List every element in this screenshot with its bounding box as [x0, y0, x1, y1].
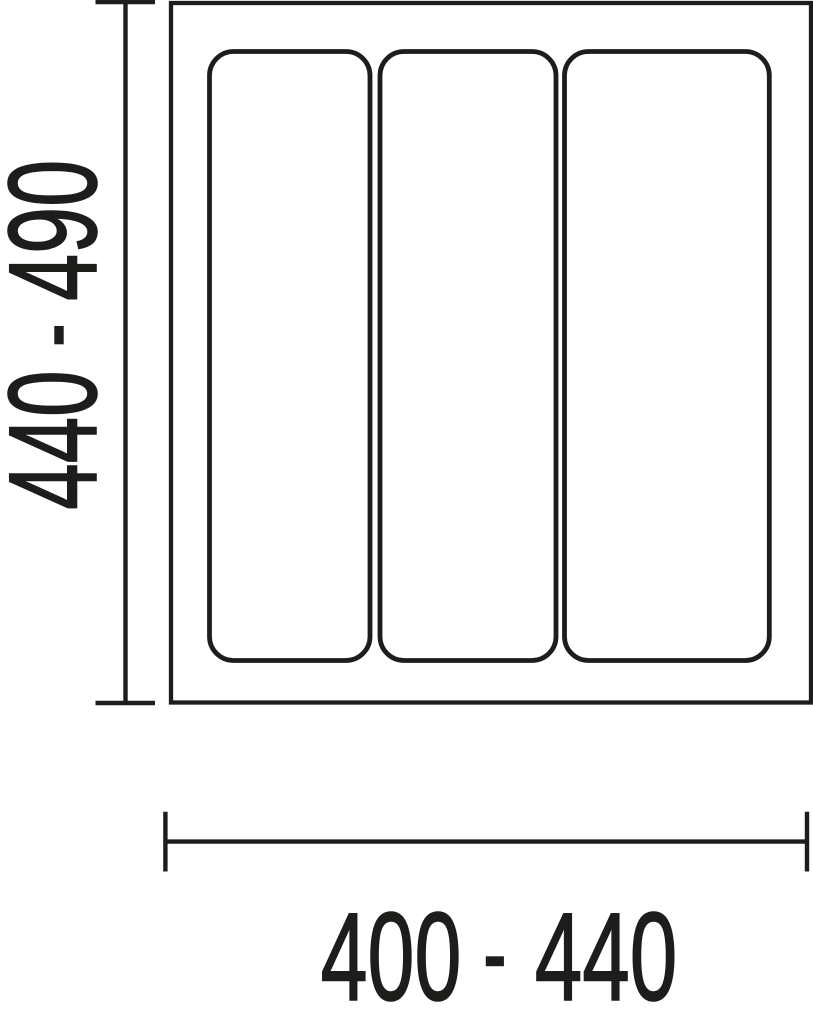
svg-text:400: 400 [321, 886, 462, 1024]
svg-text:440: 440 [0, 370, 123, 509]
svg-text:440: 440 [535, 887, 678, 1024]
svg-text:490: 490 [0, 160, 123, 301]
